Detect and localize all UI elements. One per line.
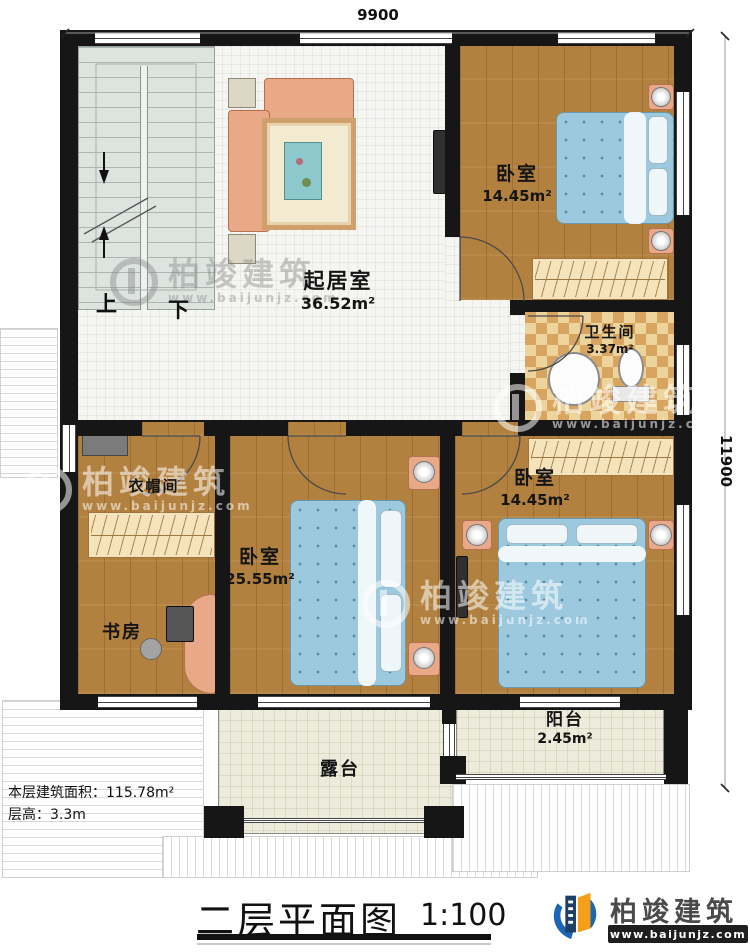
bed-sheet-fold bbox=[358, 500, 376, 686]
bed-sheet-fold bbox=[624, 112, 646, 224]
door-opening bbox=[462, 422, 518, 436]
drawing-scale: 1:100 bbox=[420, 898, 506, 933]
note-floor-area: 本层建筑面积：115.78m² bbox=[8, 782, 174, 802]
stair-handrail bbox=[140, 66, 148, 310]
pillow bbox=[576, 524, 638, 544]
computer-monitor-icon bbox=[166, 606, 194, 642]
toilet-tank bbox=[612, 386, 650, 402]
dimension-width: 9900 bbox=[338, 6, 418, 24]
room-label-cloakroom: 衣帽间 bbox=[98, 474, 210, 498]
door-opening bbox=[142, 422, 204, 436]
stair-up-label: 上 bbox=[96, 288, 117, 318]
pillow bbox=[380, 510, 402, 588]
end-table bbox=[228, 234, 256, 264]
room-label-bedroom-c: 卧室 25.55m² bbox=[202, 543, 318, 591]
title-underline bbox=[197, 934, 491, 940]
floor-plan-canvas: 柏竣建筑 www.baijunjz.com 柏竣建筑 www.baijunjz.… bbox=[0, 0, 750, 952]
room-label-terrace: 露台 bbox=[284, 756, 396, 784]
eave-below-balcony bbox=[452, 784, 690, 872]
coffee-table bbox=[284, 142, 322, 200]
lamp-icon bbox=[466, 524, 488, 546]
bed-sheet-fold bbox=[498, 546, 646, 562]
window bbox=[300, 32, 452, 44]
terrace-railing bbox=[244, 818, 424, 823]
lamp-icon bbox=[651, 231, 671, 251]
lamp-icon bbox=[413, 461, 435, 483]
wardrobe bbox=[532, 258, 668, 300]
brand-url: www.baijunjz.com bbox=[608, 925, 748, 943]
wall-bedroom-c-b bbox=[440, 436, 455, 694]
door-opening bbox=[288, 422, 346, 436]
pillow bbox=[648, 116, 668, 164]
window bbox=[98, 696, 197, 708]
wall-bathroom-top bbox=[510, 300, 692, 312]
window bbox=[558, 32, 655, 44]
terrace-post bbox=[424, 806, 464, 838]
brand-name: 柏竣建筑 bbox=[610, 890, 738, 929]
flower-decor bbox=[296, 158, 303, 165]
sofa-top bbox=[264, 78, 354, 122]
balcony-wall-right bbox=[664, 694, 688, 784]
lamp-icon bbox=[650, 524, 672, 546]
title-underline-thin bbox=[197, 943, 491, 945]
balcony-railing bbox=[456, 774, 666, 780]
terrace-post bbox=[204, 806, 244, 838]
window bbox=[676, 345, 690, 415]
flower-decor bbox=[302, 178, 311, 187]
room-label-living: 起居室 36.52m² bbox=[268, 264, 408, 318]
terrace-door bbox=[258, 696, 430, 708]
door-opening bbox=[445, 237, 460, 301]
stair-down-label: 下 bbox=[168, 294, 189, 324]
brand-logo-icon bbox=[546, 886, 604, 944]
room-label-bathroom: 卫生间 3.37m² bbox=[556, 318, 664, 362]
tv-cabinet bbox=[456, 556, 468, 618]
note-floor-height: 层高：3.3m bbox=[8, 804, 86, 824]
dimension-height: 11900 bbox=[717, 435, 735, 487]
door-opening bbox=[510, 315, 525, 373]
balcony-railing bbox=[443, 724, 455, 756]
window bbox=[95, 32, 200, 44]
wall-left bbox=[60, 30, 78, 710]
window bbox=[676, 505, 690, 615]
balcony-wall-left bbox=[442, 694, 456, 724]
wardrobe bbox=[88, 512, 215, 558]
window bbox=[676, 92, 690, 215]
wall-living-bedroom-a bbox=[445, 30, 460, 237]
room-label-bedroom-b: 卧室 14.45m² bbox=[468, 464, 602, 512]
pillow bbox=[648, 168, 668, 216]
pillow bbox=[380, 594, 402, 672]
room-label-study: 书房 bbox=[78, 620, 166, 646]
pillow bbox=[506, 524, 568, 544]
room-label-balcony: 阳台 2.45m² bbox=[506, 706, 624, 752]
lamp-icon bbox=[413, 647, 435, 669]
end-table bbox=[228, 78, 256, 108]
eave-left bbox=[0, 328, 58, 478]
window bbox=[62, 425, 76, 472]
lamp-icon bbox=[651, 87, 671, 107]
room-label-bedroom-a: 卧室 14.45m² bbox=[462, 160, 572, 208]
